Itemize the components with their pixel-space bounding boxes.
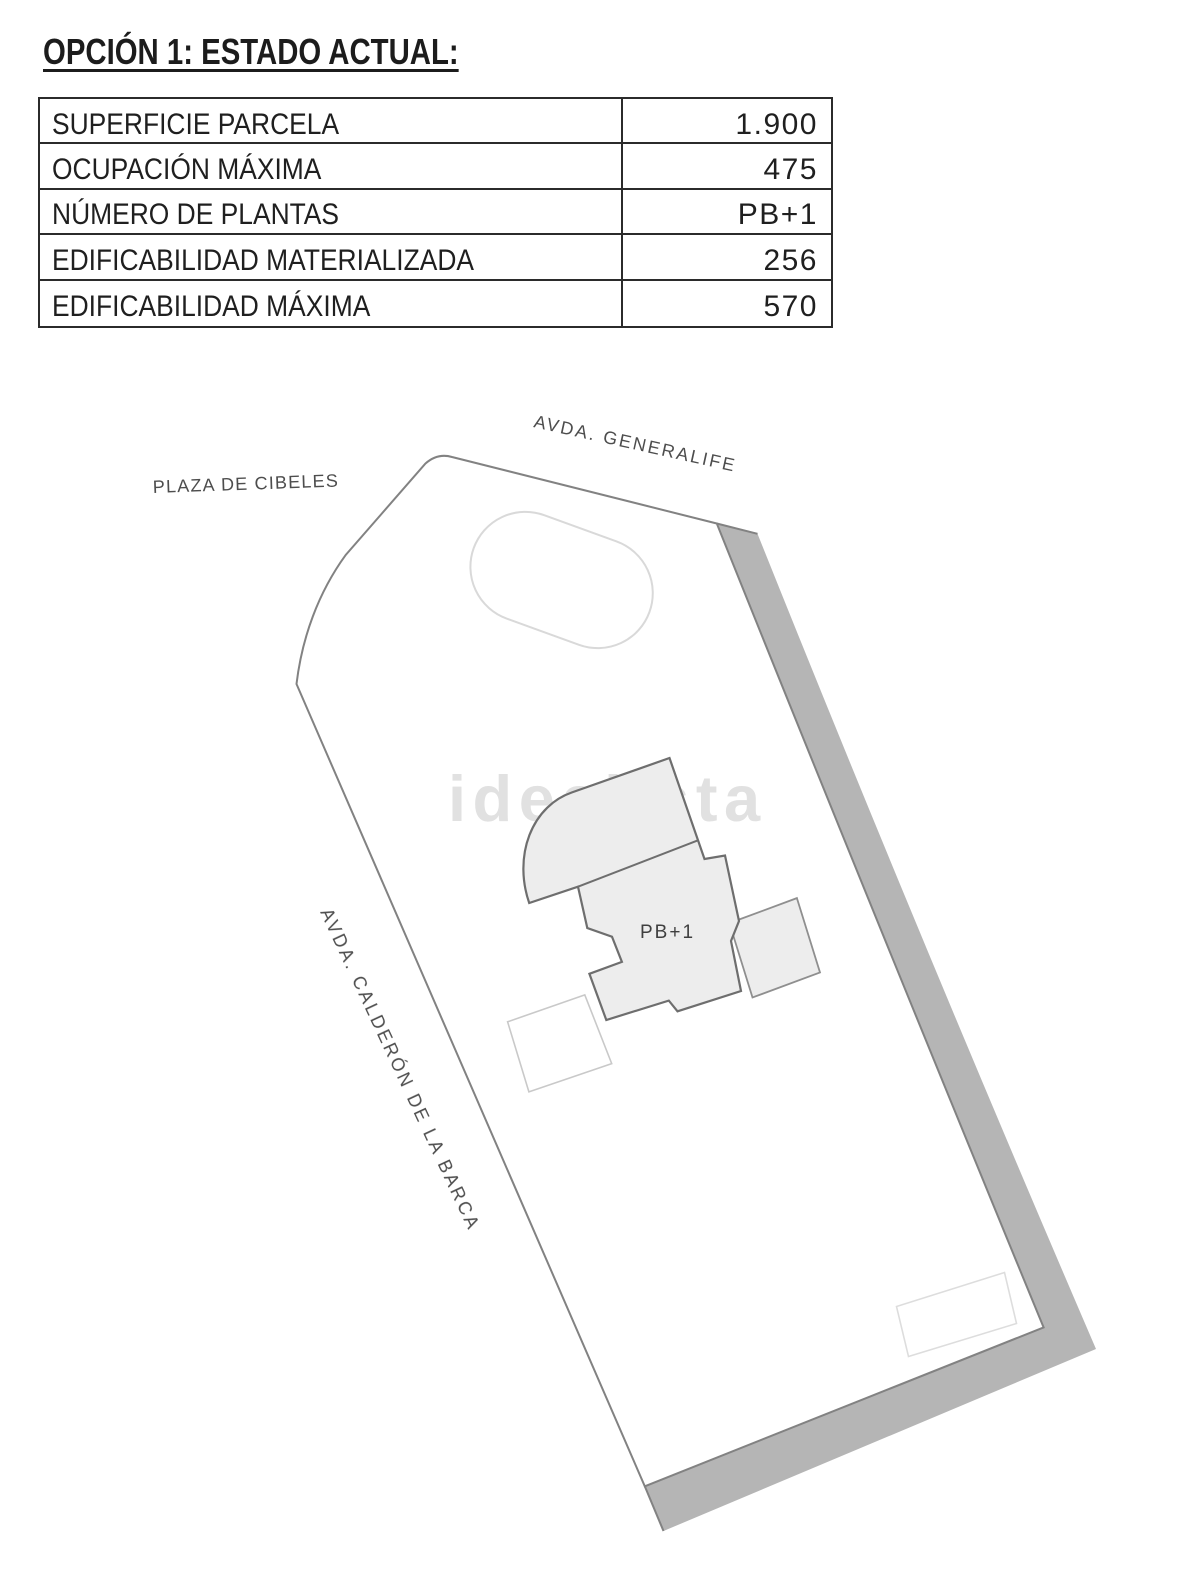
svg-text:PB+1: PB+1 <box>640 922 695 943</box>
svg-text:AVDA. GENERALIFE: AVDA. GENERALIFE <box>532 411 738 475</box>
svg-text:PLAZA DE CIBELES: PLAZA DE CIBELES <box>152 471 339 497</box>
